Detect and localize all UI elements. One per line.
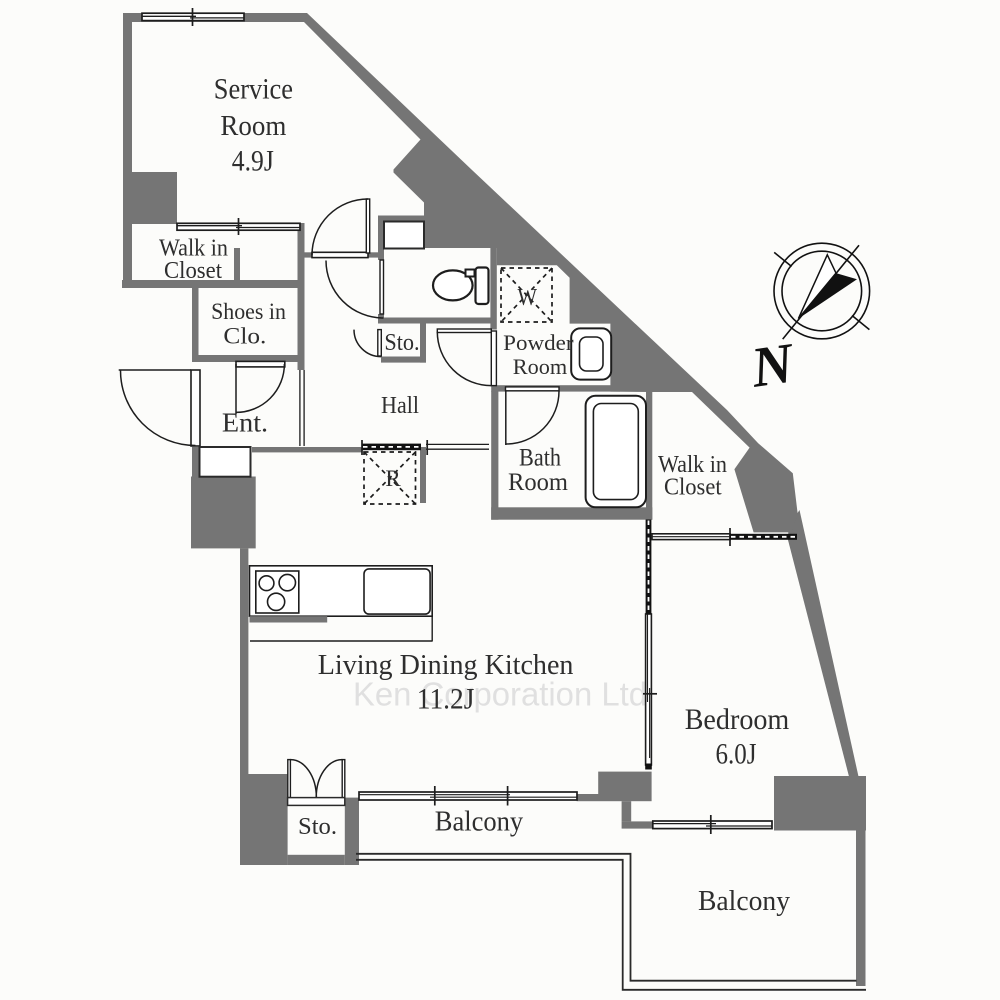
svg-text:Ken Corporation Ltd: Ken Corporation Ltd <box>353 676 647 713</box>
svg-text:Ent.: Ent. <box>222 408 268 438</box>
svg-text:Clo.: Clo. <box>223 324 266 349</box>
svg-text:Closet: Closet <box>664 475 722 501</box>
svg-text:Sto.: Sto. <box>298 814 337 840</box>
svg-text:6.0J: 6.0J <box>716 738 757 771</box>
svg-text:Service: Service <box>214 73 293 106</box>
svg-text:Room: Room <box>220 110 286 142</box>
svg-text:Bath: Bath <box>519 445 561 472</box>
svg-text:Room: Room <box>513 354 567 379</box>
svg-text:Closet: Closet <box>164 258 222 284</box>
svg-text:Living Dining Kitchen: Living Dining Kitchen <box>318 650 574 681</box>
svg-text:Balcony: Balcony <box>698 886 790 917</box>
svg-text:Room: Room <box>508 469 569 496</box>
svg-text:W: W <box>517 284 537 311</box>
svg-text:4.9J: 4.9J <box>232 145 274 178</box>
svg-text:Powder: Powder <box>503 330 574 355</box>
svg-text:Bedroom: Bedroom <box>685 703 790 736</box>
svg-text:Hall: Hall <box>381 393 419 419</box>
svg-text:11.2J: 11.2J <box>417 683 475 716</box>
svg-text:Balcony: Balcony <box>435 807 523 838</box>
svg-text:Shoes in: Shoes in <box>211 299 286 324</box>
svg-text:R: R <box>385 466 401 491</box>
svg-text:Sto.: Sto. <box>384 330 419 356</box>
